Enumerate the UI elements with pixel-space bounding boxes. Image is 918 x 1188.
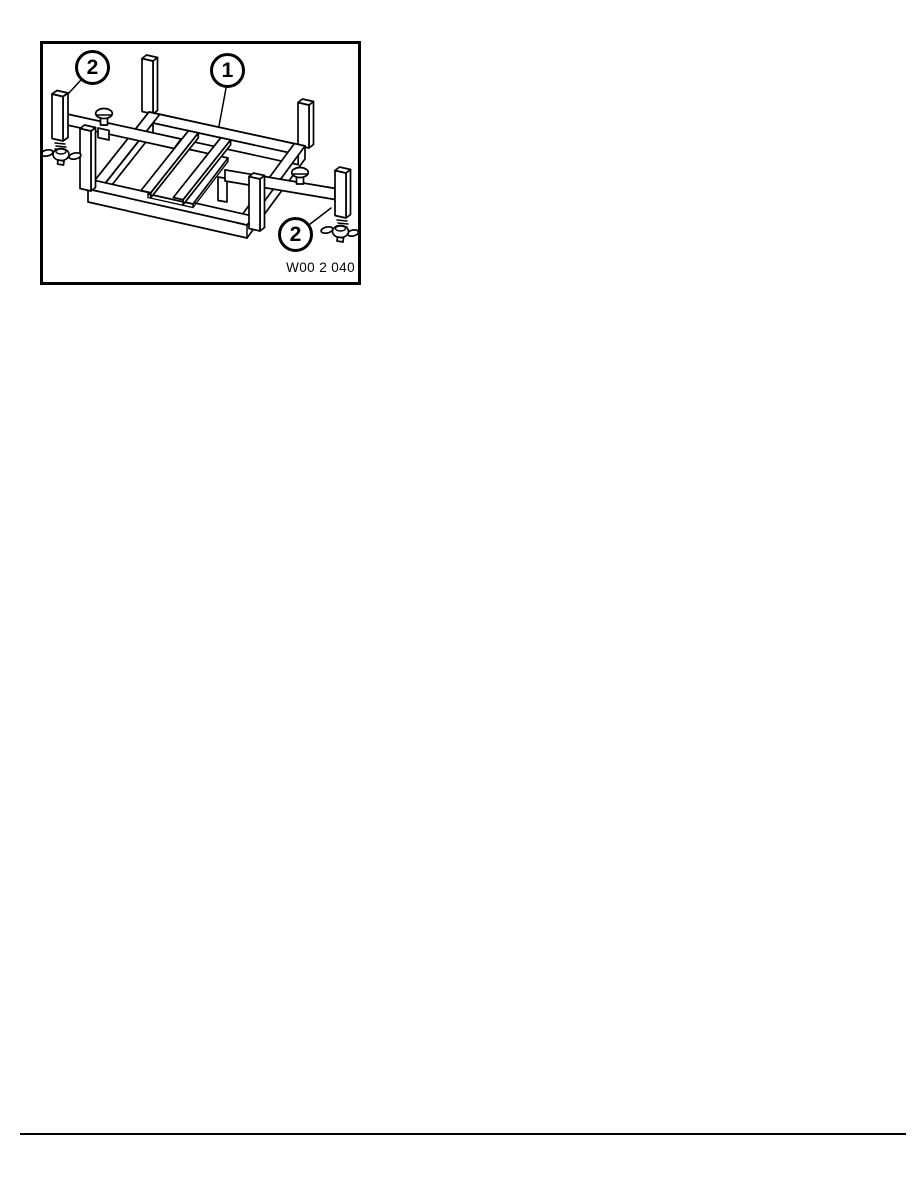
leader-callout-1 bbox=[219, 88, 226, 126]
adapter-post-left bbox=[52, 91, 68, 151]
callout-balloon-2-left: 2 bbox=[75, 50, 110, 85]
callout-balloon-1: 1 bbox=[210, 53, 245, 88]
front-right-leg bbox=[249, 173, 265, 231]
footer-rule bbox=[20, 1133, 906, 1135]
back-right-leg bbox=[298, 99, 314, 148]
adapter-post-right bbox=[335, 167, 351, 227]
callout-balloon-2-right: 2 bbox=[278, 217, 313, 252]
leader-callout-2-right bbox=[310, 208, 332, 225]
wing-nut-right bbox=[321, 226, 358, 243]
back-left-leg bbox=[142, 55, 158, 114]
front-left-leg bbox=[80, 125, 96, 191]
figure-box: 2 1 2 W00 2 040 bbox=[40, 41, 361, 285]
callout-label: 2 bbox=[87, 57, 99, 78]
manual-page: { "figure": { "caption": "W00 2 040", "c… bbox=[0, 0, 918, 1188]
wing-nut-left bbox=[43, 149, 81, 166]
callout-label: 1 bbox=[222, 60, 234, 81]
figure-code: W00 2 040 bbox=[286, 260, 355, 275]
leader-callout-2-left bbox=[68, 80, 81, 94]
callout-label: 2 bbox=[290, 224, 302, 245]
